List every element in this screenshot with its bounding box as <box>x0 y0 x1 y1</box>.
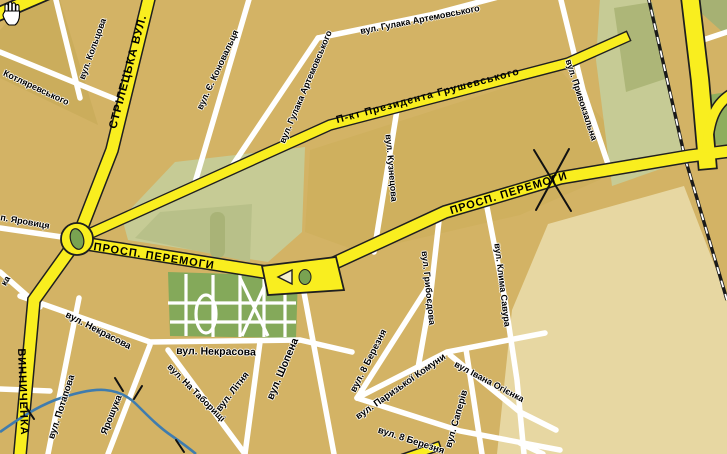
street-label-yarovytsia: п. Яровиця <box>0 213 50 231</box>
street-label-peremohy-east: ПРОСП. ПЕРЕМОГИ <box>449 171 569 217</box>
street-label-klyma-savura: вул. Клима Савура <box>492 243 511 327</box>
street-label-yaroshuka: Ярошука <box>100 394 124 436</box>
street-label-na-taboryshchi: вул. На Таборищі <box>165 362 226 423</box>
street-label-kuznetsova: вул. Кузнецова <box>384 134 399 202</box>
street-label-hrushevskoho: П-кт Президента Грушевського <box>335 66 521 125</box>
street-label-hulaka-artemovskoho-horiz: вул. Гулака Артемовського <box>360 4 481 36</box>
street-label-berezni8-upper: вул. 8 Березня <box>349 328 389 394</box>
street-label-vynnychenka: ВИННИЧЕНКА <box>15 348 29 436</box>
street-label-striletska: СТРІЛЕЦЬКА ВУЛ. <box>108 14 150 131</box>
street-label-litnia: вул. Літня <box>215 370 252 413</box>
street-label-hryboiedova: вул. Грибоєдова <box>420 251 437 326</box>
map-canvas[interactable]: СТРІЛЕЦЬКА ВУЛ.ВИННИЧЕНКАПРОСП. ПЕРЕМОГИ… <box>0 0 727 454</box>
street-label-nekrasova-diag: вул. Некрасова <box>64 310 133 351</box>
street-label-kotliarevskoho: Котляревського <box>2 69 71 107</box>
street-label-peremohy-west: ПРОСП. ПЕРЕМОГИ <box>93 242 216 272</box>
street-label-pryvokzalna: вул. Привокзальна <box>564 58 599 142</box>
street-label-nekrasova-horiz: вул. Некрасова <box>176 346 256 358</box>
street-label-ka-fragment: ка <box>0 275 12 288</box>
street-label-hulaka-artemovskoho-diag: вул. Гулака Артемовського <box>278 29 334 144</box>
hand-cursor-icon <box>0 0 24 27</box>
street-label-potapova: вул. Потапова <box>47 374 77 441</box>
street-label-saperiv: вул. Саперів <box>444 389 470 449</box>
street-label-konovaltsia: вул. Є. Коновальця <box>196 29 241 111</box>
street-label-koltsova: вул. Кольцова <box>78 17 108 81</box>
label-layer: СТРІЛЕЦЬКА ВУЛ.ВИННИЧЕНКАПРОСП. ПЕРЕМОГИ… <box>0 0 727 454</box>
street-label-shopena: вул. Шопена <box>265 337 300 402</box>
street-label-berezni8-lower: вул. 8 Березня <box>377 426 446 454</box>
